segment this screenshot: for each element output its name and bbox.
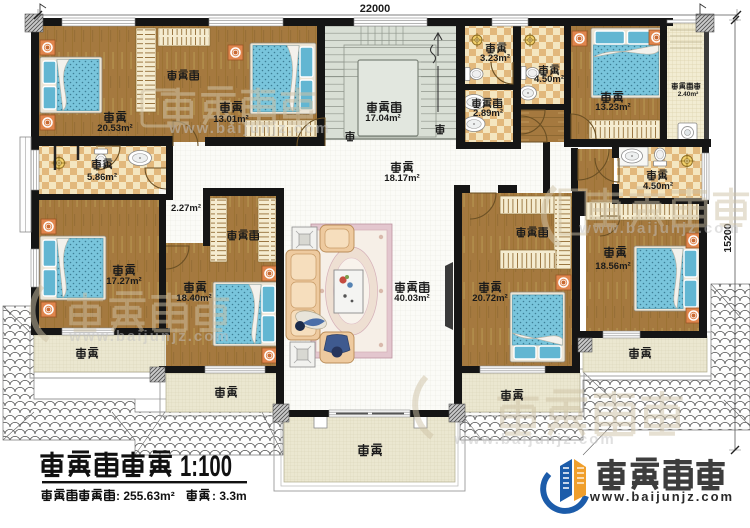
- svg-text:17.04m²: 17.04m²: [365, 113, 400, 124]
- svg-text:: 255.63m²: : 255.63m²: [116, 489, 175, 503]
- svg-text:: 3.3m: : 3.3m: [212, 489, 247, 503]
- svg-text:2.27m²: 2.27m²: [171, 203, 201, 214]
- svg-text:www.baijunjz.com: www.baijunjz.com: [68, 328, 230, 345]
- svg-text:13.23m²: 13.23m²: [595, 102, 630, 113]
- svg-text:www.baijunjz.com: www.baijunjz.com: [168, 120, 330, 137]
- svg-text:2.40m²: 2.40m²: [678, 91, 699, 98]
- svg-text:5.86m²: 5.86m²: [87, 172, 117, 183]
- svg-text:20.72m²: 20.72m²: [472, 293, 507, 304]
- svg-text:13.01m²: 13.01m²: [213, 114, 248, 125]
- svg-text:3.23m²: 3.23m²: [480, 53, 510, 64]
- svg-text:22000: 22000: [360, 3, 391, 15]
- svg-text:18.40m²: 18.40m²: [176, 293, 211, 304]
- svg-text:4.50m²: 4.50m²: [534, 74, 564, 85]
- svg-text:40.03m²: 40.03m²: [394, 293, 429, 304]
- svg-text:18.17m²: 18.17m²: [384, 173, 419, 184]
- svg-text:17.27m²: 17.27m²: [106, 276, 141, 287]
- svg-text:2.89m²: 2.89m²: [473, 108, 503, 119]
- svg-text:20.53m²: 20.53m²: [97, 123, 132, 134]
- svg-text:18.56m²: 18.56m²: [595, 261, 630, 272]
- svg-text:www.baijunjz.com: www.baijunjz.com: [589, 489, 734, 504]
- svg-text:1:100: 1:100: [180, 450, 232, 483]
- svg-text:4.50m²: 4.50m²: [643, 181, 673, 192]
- svg-text:www.baijunjz.com: www.baijunjz.com: [453, 431, 615, 448]
- svg-text:www.baijunjz.com: www.baijunjz.com: [578, 220, 740, 237]
